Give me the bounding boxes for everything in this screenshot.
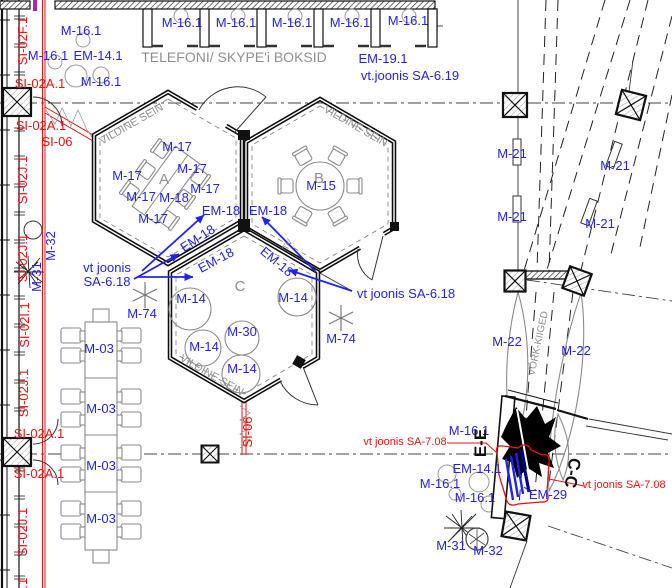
label-m14-1: M-14 (176, 291, 206, 306)
label-m14-2: M-14 (278, 290, 308, 305)
label-m03-3: M-03 (86, 458, 116, 473)
column-icon (202, 446, 219, 463)
column-icon (502, 512, 531, 541)
label-si02a-1: SI-02A.1 (15, 76, 66, 91)
label-m16-booth-3: M-16.1 (272, 15, 312, 30)
column-icon (505, 271, 526, 292)
label-vtjoonis-sa618-l2: SA-6.18 (84, 274, 131, 289)
label-em19: EM-19.1 (358, 51, 407, 66)
label-m17-6: M-17 (138, 211, 168, 226)
label-room-a: A (159, 171, 169, 188)
label-si02j-1: SI-02J.1 (15, 156, 30, 204)
label-m74-2: M-74 (326, 331, 356, 346)
label-m22-2: M-22 (561, 343, 591, 358)
label-si02i: SI-02I.1 (17, 302, 32, 348)
label-m31-left: M-31 (29, 262, 44, 292)
label-m16-booth-2: M-16.1 (216, 15, 256, 30)
magenta-marker (33, 0, 37, 11)
label-m18: M-18 (159, 190, 189, 205)
label-m17-1: M-17 (162, 139, 192, 154)
column-icon (3, 88, 31, 116)
label-m16-booth-1: M-16.1 (162, 15, 202, 30)
label-em14-br: EM-14.1 (452, 461, 501, 476)
label-si02j-2: SI-02J.1 (15, 234, 30, 282)
column-icon (616, 90, 646, 120)
label-m74-1: M-74 (127, 306, 157, 321)
label-vtjoonis-sa708-l: vt joonis SA-7.08 (363, 436, 446, 448)
floorplan-canvas: M-16.1M-16.1EM-14.1M-16.1M-16.1M-16.1M-1… (0, 0, 672, 588)
label-si02a-3: SI-02A.1 (14, 426, 65, 441)
label-si02a-4: SI-02A.1 (14, 466, 65, 481)
label-vtjoonis-sa619: vt.joonis SA-6.19 (361, 68, 459, 83)
label-si02j-3: SI-02J.1 (16, 369, 31, 417)
label-room-c: C (235, 278, 246, 295)
label-telefoni: TELEFONI/ SKYPE'i BOKSID (141, 49, 327, 65)
label-m03-4: M-03 (86, 511, 116, 526)
label-vildine-sein-b: VILDINE SEIN (322, 103, 390, 149)
label-m16-tl-2: M-16.1 (28, 48, 68, 63)
label-vildine-sein-a: VILDINE SEIN (98, 101, 166, 147)
label-si02f: SI-02F.1 (15, 17, 30, 65)
label-m16-br-3: M-16.1 (455, 490, 495, 505)
label-m03-1: M-03 (84, 341, 114, 356)
label-m31-br: M-31 (436, 538, 466, 553)
label-vtjoonis-sa708-r: vt joonis SA-7.08 (582, 479, 665, 491)
label-vtjoonis-sa618-r: vt joonis SA-6.18 (357, 286, 455, 301)
label-m21-4: M-21 (585, 216, 615, 231)
label-m17-3: M-17 (190, 181, 220, 196)
column-icon (503, 93, 527, 117)
label-m16-booth-4: M-16.1 (330, 15, 370, 30)
label-m14-3: M-14 (189, 339, 219, 354)
label-m21-3: M-21 (497, 209, 527, 224)
label-m17-5: M-17 (126, 189, 156, 204)
label-m30: M-30 (227, 324, 257, 339)
label-em18-4: EM-18 (195, 244, 236, 275)
label-m16-br-2: M-16.1 (420, 476, 460, 491)
label-em14-tl: EM-14.1 (73, 48, 122, 63)
label-m32-left: M-32 (43, 231, 58, 261)
label-em29: EM-29 (529, 487, 567, 502)
label-m17-2: M-17 (177, 161, 207, 176)
label-em18-2: EM-18 (249, 203, 287, 218)
label-m15: M-15 (306, 178, 336, 193)
label-m21-2: M-21 (600, 158, 630, 173)
label-m03-2: M-03 (86, 401, 116, 416)
label-m32-br: M-32 (473, 543, 503, 558)
label-si02j-4: SI-02J.1 (15, 508, 30, 556)
column-icon (3, 438, 31, 466)
label-si02a-2: SI-02A.1 (16, 118, 67, 133)
label-si06-1: SI-06 (41, 134, 72, 149)
label-m16-booth-5: M-16.1 (388, 13, 428, 28)
label-m17-4: M-17 (112, 168, 142, 183)
floorplan-drawing: M-16.1M-16.1EM-14.1M-16.1M-16.1M-16.1M-1… (0, 0, 672, 588)
label-vtjoonis-sa618-l1: vt joonis (83, 260, 131, 275)
label-m21-1: M-21 (497, 146, 527, 161)
label-m22-1: M-22 (492, 334, 522, 349)
label-si02j-5: SI-02J.1 (15, 578, 30, 588)
ceiling-device-icons (513, 139, 622, 226)
label-em18-1: EM-18 (202, 203, 240, 218)
label-m14-4: M-14 (227, 361, 257, 376)
label-m16-tl-3: M-16.1 (81, 74, 121, 89)
label-section-cc: C-C (560, 456, 584, 489)
label-section-ee: E-E (471, 429, 490, 457)
label-m16-tl-1: M-16.1 (61, 23, 101, 38)
label-si06-2: SI-06 (240, 416, 255, 447)
